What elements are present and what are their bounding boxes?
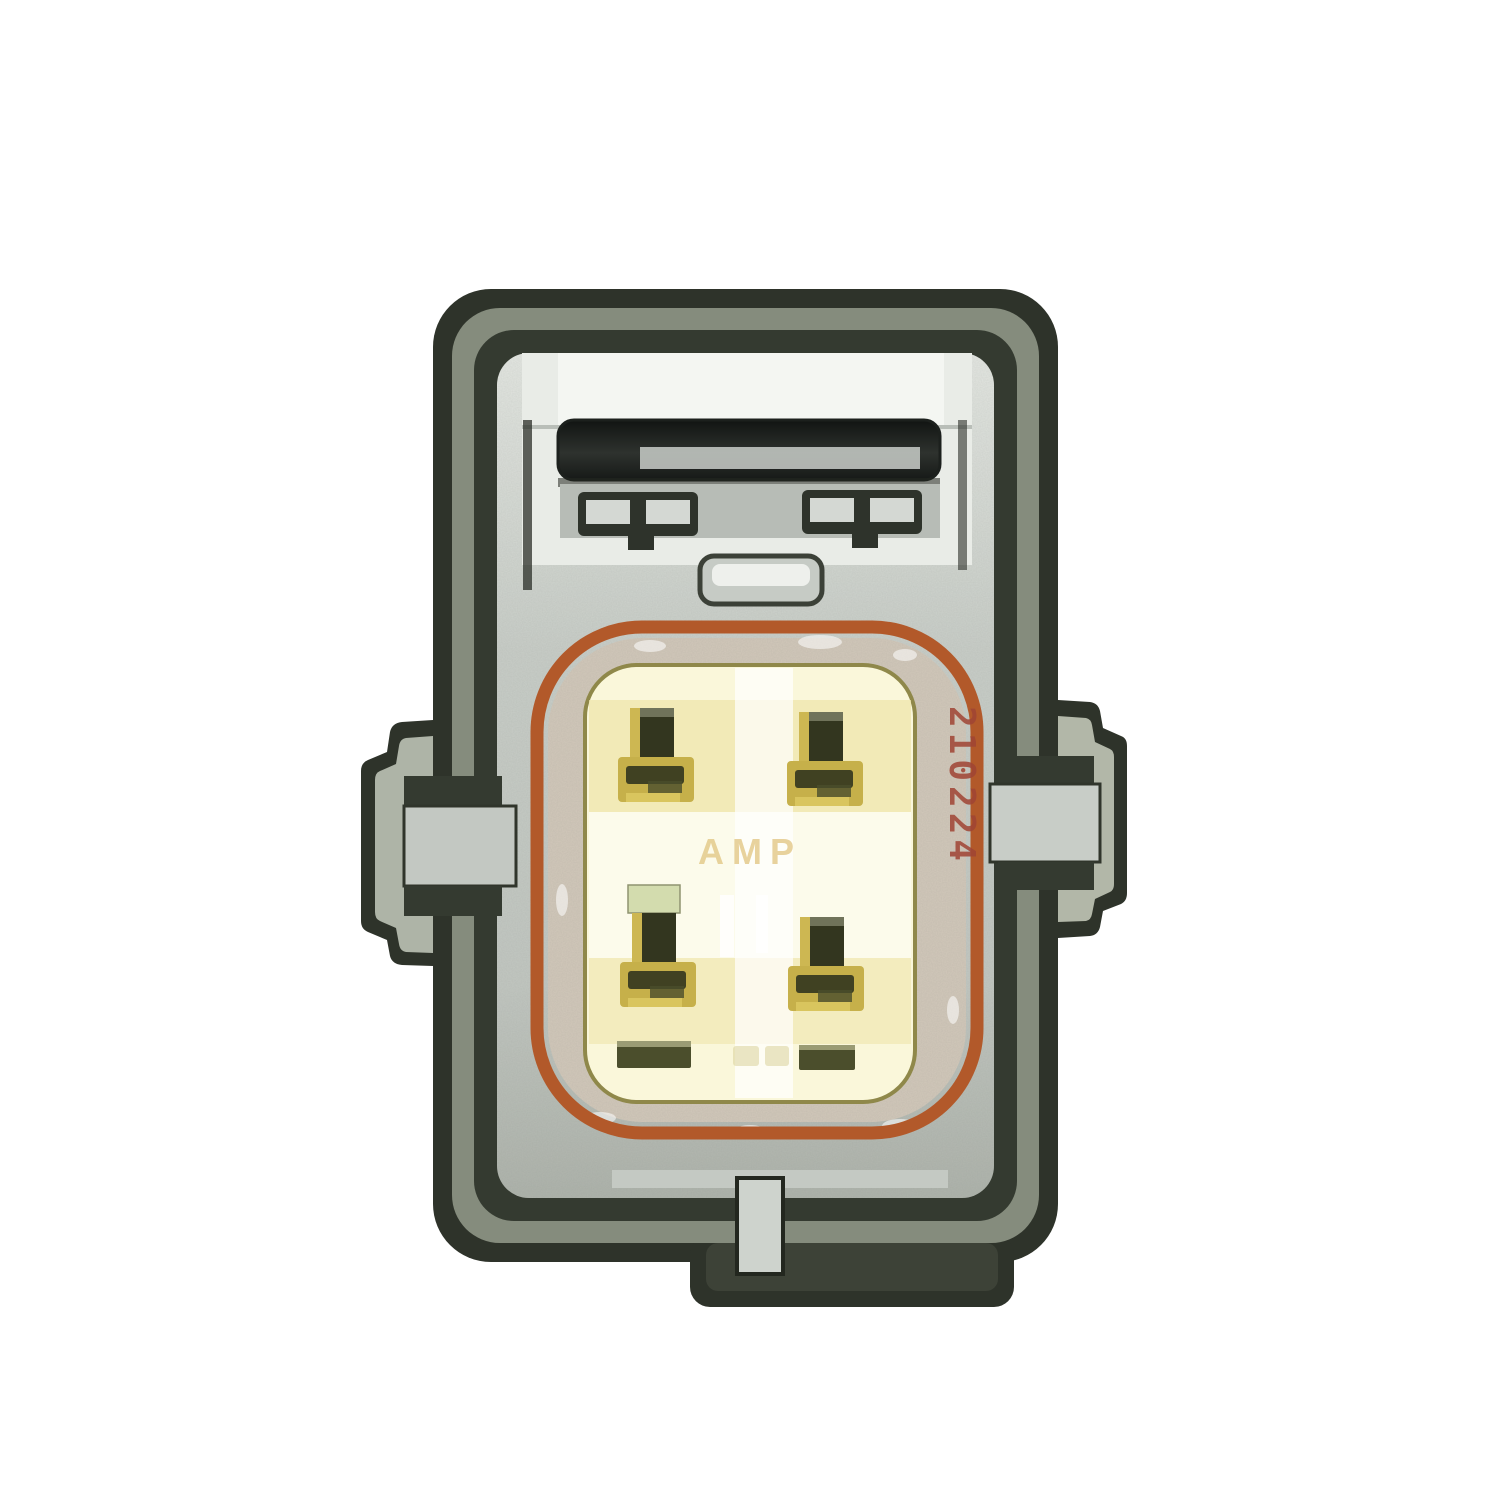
center-keyway-highlight <box>712 564 810 586</box>
cavity-white-band <box>558 353 944 427</box>
seal-assembly: AMP 210224 <box>537 627 982 1135</box>
right-step-lower <box>998 862 1094 890</box>
clip-right-slot-1 <box>810 498 854 522</box>
cavity-left-wall <box>523 420 532 590</box>
face-slot-left-highlight <box>617 1041 691 1047</box>
cavity-right-wall <box>958 420 967 570</box>
left-step-upper <box>404 776 502 806</box>
right-step-upper <box>998 756 1094 784</box>
bottom-key-stem <box>737 1178 783 1274</box>
latch-bar-highlight <box>640 447 920 469</box>
clip-left-slot-2 <box>646 500 690 524</box>
right-side-tab <box>990 784 1100 862</box>
face-slot-right-highlight <box>799 1045 855 1050</box>
brand-marking: AMP <box>698 831 802 872</box>
clip-left-foot <box>628 536 654 550</box>
left-step-lower <box>404 886 502 916</box>
connector-drawing: AMP 210224 <box>0 0 1500 1500</box>
clip-left-slot-1 <box>586 500 630 524</box>
connector-photo: AMP 210224 <box>0 0 1500 1500</box>
left-side-tab <box>404 806 516 886</box>
pin-cap-green <box>628 885 680 913</box>
clip-right-slot-2 <box>870 498 914 522</box>
clip-right-foot <box>852 534 878 548</box>
side-code-marking: 210224 <box>941 706 982 866</box>
